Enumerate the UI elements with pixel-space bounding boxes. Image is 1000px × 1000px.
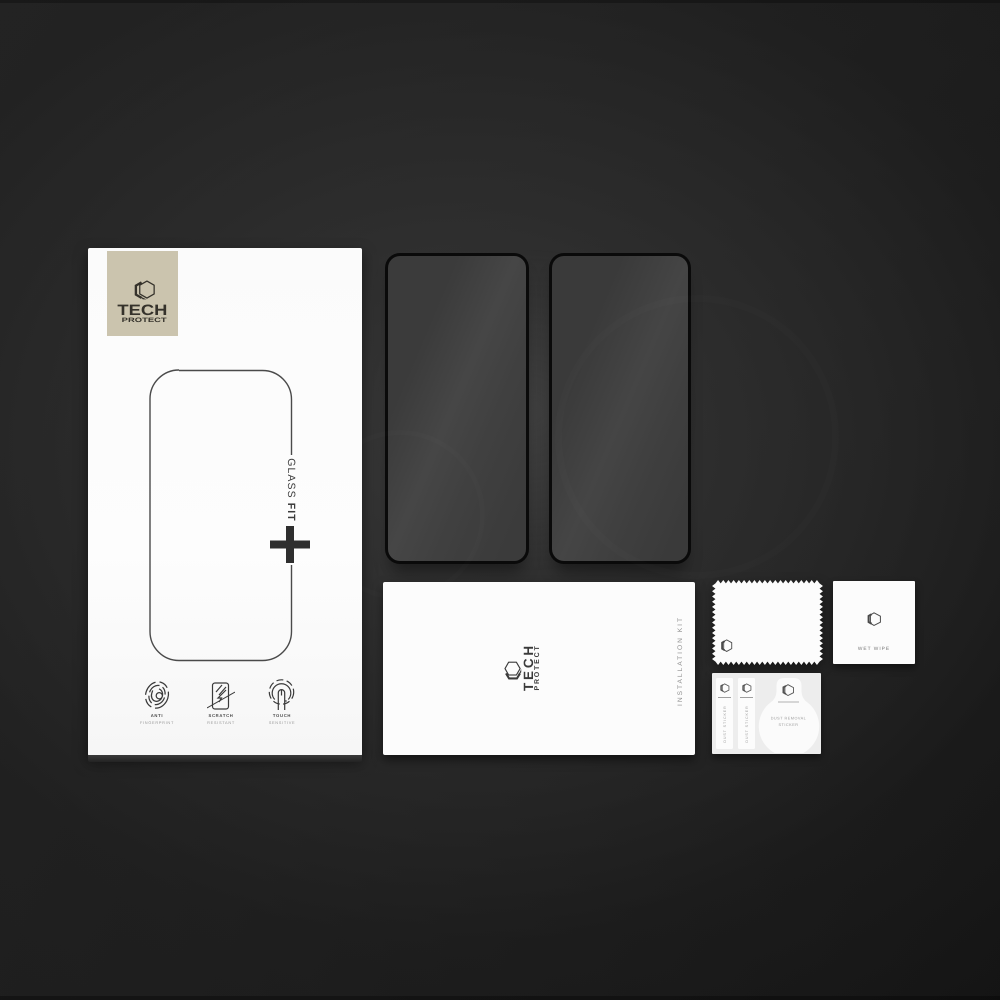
svg-text:STICKER: STICKER — [779, 723, 799, 727]
svg-text:DUST REMOVAL: DUST REMOVAL — [771, 717, 807, 721]
